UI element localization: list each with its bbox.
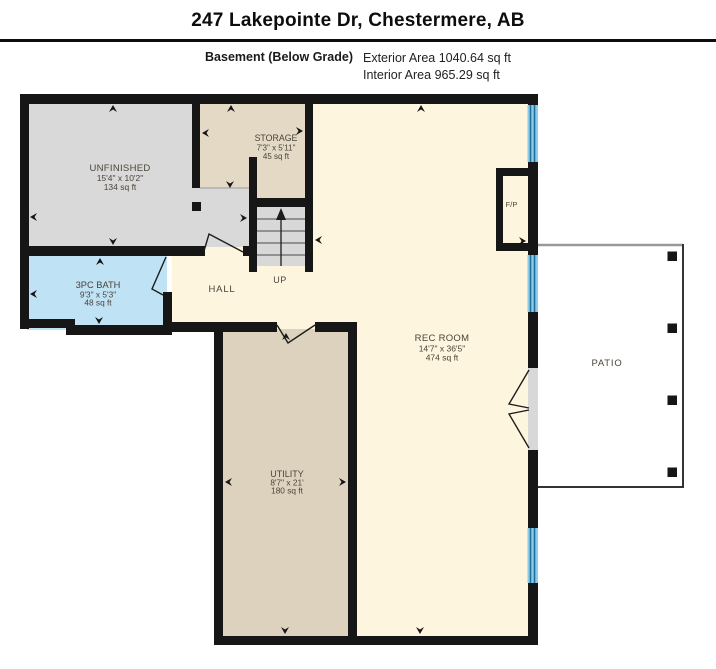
fireplace-wall-top	[496, 168, 528, 176]
room-area: 180 sq ft	[271, 486, 304, 496]
stairs-up-label: UP	[273, 275, 287, 285]
patio-post	[668, 468, 678, 478]
wall-stairs-left	[249, 157, 257, 272]
fireplace-wall-bottom	[496, 243, 528, 251]
stairs	[257, 207, 305, 266]
wall-bottom	[214, 636, 538, 645]
wall-storage-bottom	[250, 198, 313, 207]
window-icon	[528, 528, 539, 583]
floorplan-page: 247 Lakepointe Dr, Chestermere, AB Basem…	[0, 0, 716, 669]
room-area: 474 sq ft	[426, 353, 459, 363]
room-name: REC ROOM	[415, 333, 470, 344]
room-area: 48 sq ft	[84, 298, 112, 308]
patio-post	[668, 396, 678, 406]
wall-utility-left	[214, 322, 223, 645]
wall-top	[20, 94, 538, 104]
wall-bath-bottom-b	[66, 325, 172, 335]
wall-post	[192, 202, 201, 211]
floor-fills	[27, 103, 528, 639]
patio-post	[668, 324, 678, 334]
window-icon	[528, 105, 539, 162]
wall-unfinished-right	[192, 103, 200, 188]
wall-hall-top	[20, 246, 205, 256]
wall-utility-top-left	[172, 322, 277, 332]
wall-left	[20, 94, 29, 329]
wall-storage-right	[305, 103, 313, 272]
room-area: 45 sq ft	[263, 152, 290, 161]
wall-hall-top-stub	[243, 246, 249, 256]
wall-bath-right	[163, 292, 172, 334]
wall-utility-right	[348, 322, 357, 645]
fireplace-wall-left	[496, 168, 503, 251]
room-name: STORAGE	[255, 133, 298, 143]
patio-label: PATIO	[591, 358, 622, 369]
room-area: 134 sq ft	[104, 182, 137, 192]
utility-label: UTILITY 8'7" x 21' 180 sq ft	[270, 469, 304, 496]
window-icon	[528, 255, 539, 312]
room-name: 3PC BATH	[76, 280, 121, 290]
patio-post	[668, 252, 678, 262]
fireplace-label: F/P	[506, 200, 518, 209]
floor-plan-drawing: UNFINISHED 15'4" x 10'2" 134 sq ft STORA…	[0, 0, 716, 669]
hall-label: HALL	[209, 284, 236, 295]
patio-door-sill	[528, 368, 538, 450]
